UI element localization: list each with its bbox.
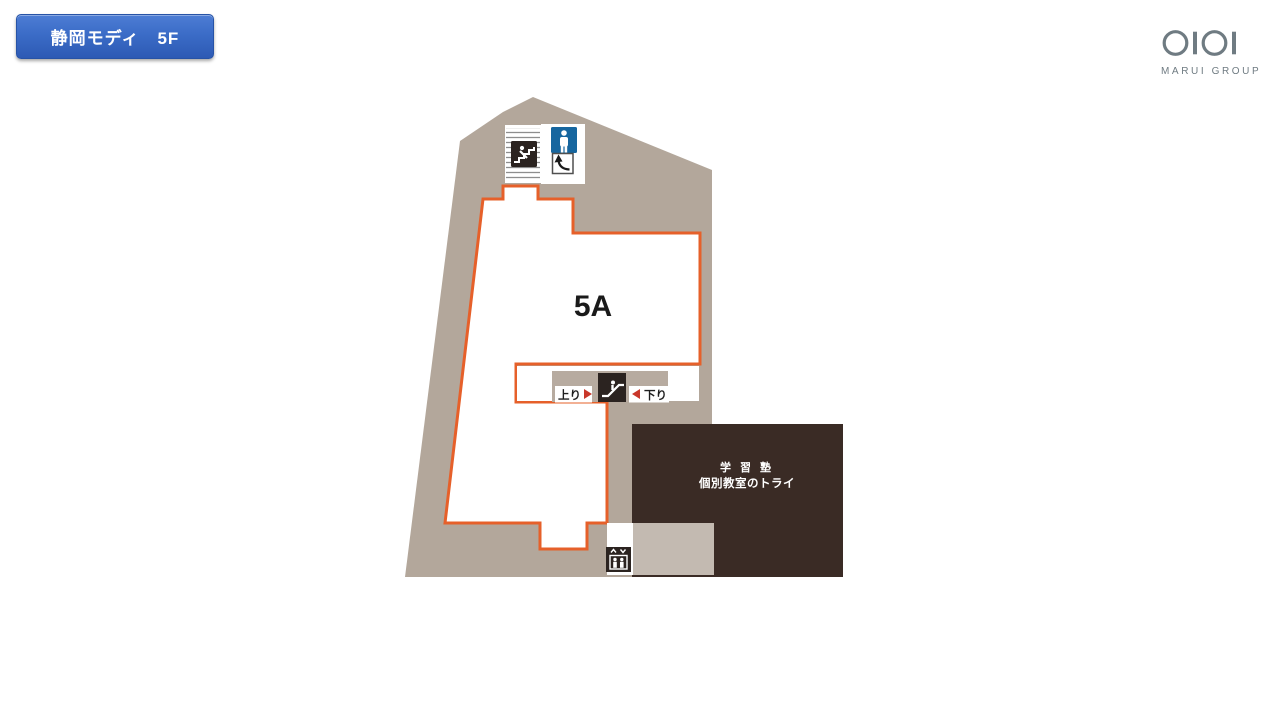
elevator-area	[606, 523, 633, 575]
escalator-corridor: 上り 下り	[517, 366, 699, 403]
stairs-icon	[511, 141, 537, 167]
tenant-inner-square	[632, 523, 714, 575]
room-label-5a: 5A	[574, 290, 612, 323]
toilet-area	[541, 124, 585, 184]
tenant-name: 個別教室のトライ	[698, 476, 795, 490]
escalator-up-label-box: 上り	[555, 386, 592, 403]
turn-arrow-icon	[553, 154, 574, 174]
elevator-icon	[606, 547, 631, 572]
escalator-down-label-box: 下り	[629, 386, 669, 403]
escalator-down-label: 下り	[644, 389, 667, 402]
mens-toilet-icon	[551, 127, 577, 153]
tenant-category: 学 習 塾	[720, 460, 774, 474]
stairs-area	[505, 125, 541, 183]
floor-map: 上り 下り 5A 学 習 塾 個別教室のトライ	[0, 0, 1280, 720]
escalator-icon	[598, 373, 626, 402]
escalator-up-label: 上り	[558, 388, 581, 402]
tenant-area: 学 習 塾 個別教室のトライ	[632, 424, 843, 577]
